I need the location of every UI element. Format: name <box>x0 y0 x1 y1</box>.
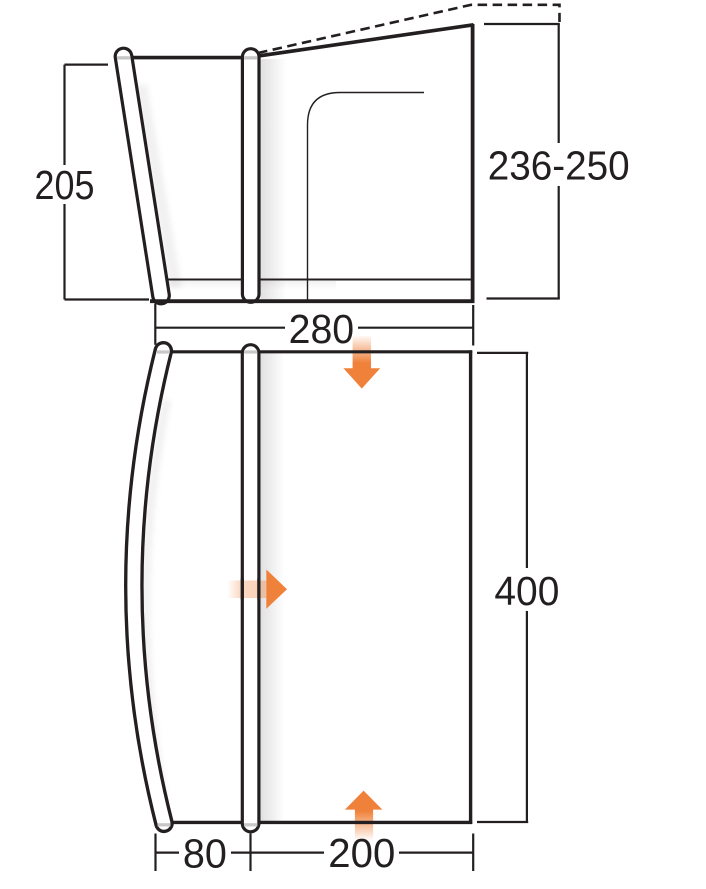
svg-text:80: 80 <box>183 831 227 877</box>
svg-text:200: 200 <box>328 830 395 876</box>
svg-text:205: 205 <box>35 162 95 208</box>
svg-text:236-250: 236-250 <box>488 143 630 189</box>
svg-text:400: 400 <box>494 568 559 614</box>
svg-text:280: 280 <box>289 306 355 352</box>
